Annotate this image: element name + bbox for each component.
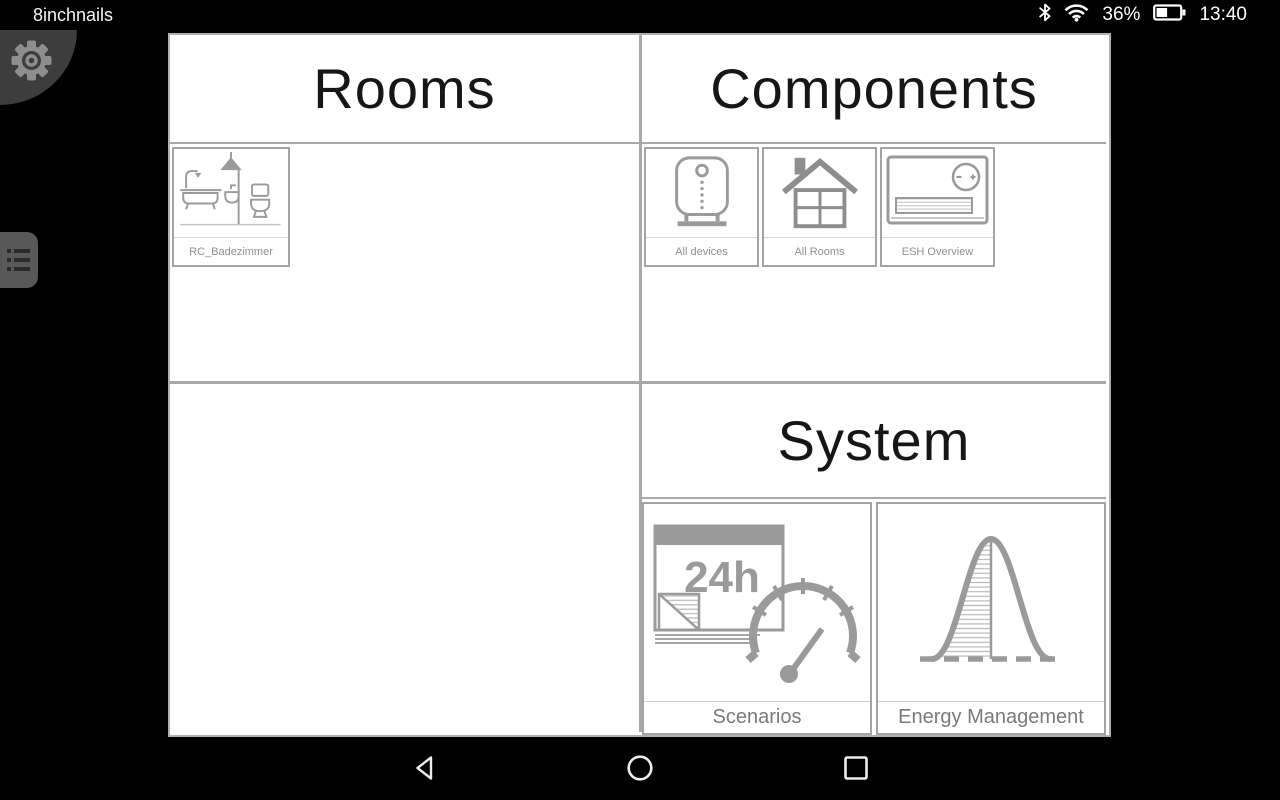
settings-button[interactable] bbox=[0, 30, 77, 105]
tile-all-rooms[interactable]: All Rooms bbox=[762, 147, 877, 267]
tile-all-devices[interactable]: All devices bbox=[644, 147, 759, 267]
system-section-title: System bbox=[642, 384, 1106, 499]
rooms-section-title: Rooms bbox=[170, 35, 639, 144]
section-components: Components bbox=[639, 35, 1106, 381]
clock-label: 13:40 bbox=[1199, 4, 1247, 26]
main-panel: Rooms bbox=[168, 33, 1111, 737]
tile-esh-overview[interactable]: ESH Overview bbox=[880, 147, 995, 267]
bluetooth-icon bbox=[1039, 3, 1051, 27]
status-icons: 36% 13:40 bbox=[1039, 0, 1247, 30]
wifi-icon bbox=[1064, 3, 1089, 27]
home-button[interactable] bbox=[625, 753, 655, 783]
components-section-title: Components bbox=[642, 35, 1106, 144]
battery-icon bbox=[1153, 4, 1186, 26]
empty-quadrant bbox=[170, 381, 639, 732]
heater-thermostat-icon bbox=[882, 149, 993, 237]
device-box-icon bbox=[646, 149, 757, 237]
section-system: System 24h bbox=[639, 381, 1106, 732]
section-rooms: Rooms bbox=[170, 35, 639, 381]
android-nav-bar bbox=[0, 737, 1280, 800]
back-button[interactable] bbox=[410, 753, 440, 783]
menu-tab-button[interactable] bbox=[0, 232, 38, 288]
tile-label: RC_Badezimmer bbox=[174, 237, 288, 265]
status-bar: 8inchnails 36% 13:4 bbox=[0, 0, 1280, 30]
list-menu-icon bbox=[7, 249, 38, 271]
recents-square-icon bbox=[841, 753, 871, 783]
tile-label: All devices bbox=[646, 237, 757, 265]
back-triangle-icon bbox=[410, 753, 440, 783]
tile-rc-badezimmer[interactable]: RC_Badezimmer bbox=[172, 147, 290, 267]
bathroom-icon bbox=[174, 149, 288, 237]
tile-scenarios[interactable]: 24h bbox=[642, 502, 872, 735]
screen: 8inchnails 36% 13:4 bbox=[0, 0, 1280, 800]
tile-label: Energy Management bbox=[878, 701, 1104, 733]
tile-energy-management[interactable]: Energy Management bbox=[876, 502, 1106, 735]
bell-curve-icon bbox=[878, 504, 1104, 701]
carrier-label: 8inchnails bbox=[33, 0, 113, 30]
battery-percent-label: 36% bbox=[1102, 4, 1140, 26]
tile-label: All Rooms bbox=[764, 237, 875, 265]
recents-button[interactable] bbox=[841, 753, 871, 783]
home-circle-icon bbox=[625, 753, 655, 783]
house-icon bbox=[764, 149, 875, 237]
tile-label: ESH Overview bbox=[882, 237, 993, 265]
calendar-24h-gauge-icon: 24h bbox=[644, 504, 870, 701]
tile-label: Scenarios bbox=[644, 701, 870, 733]
